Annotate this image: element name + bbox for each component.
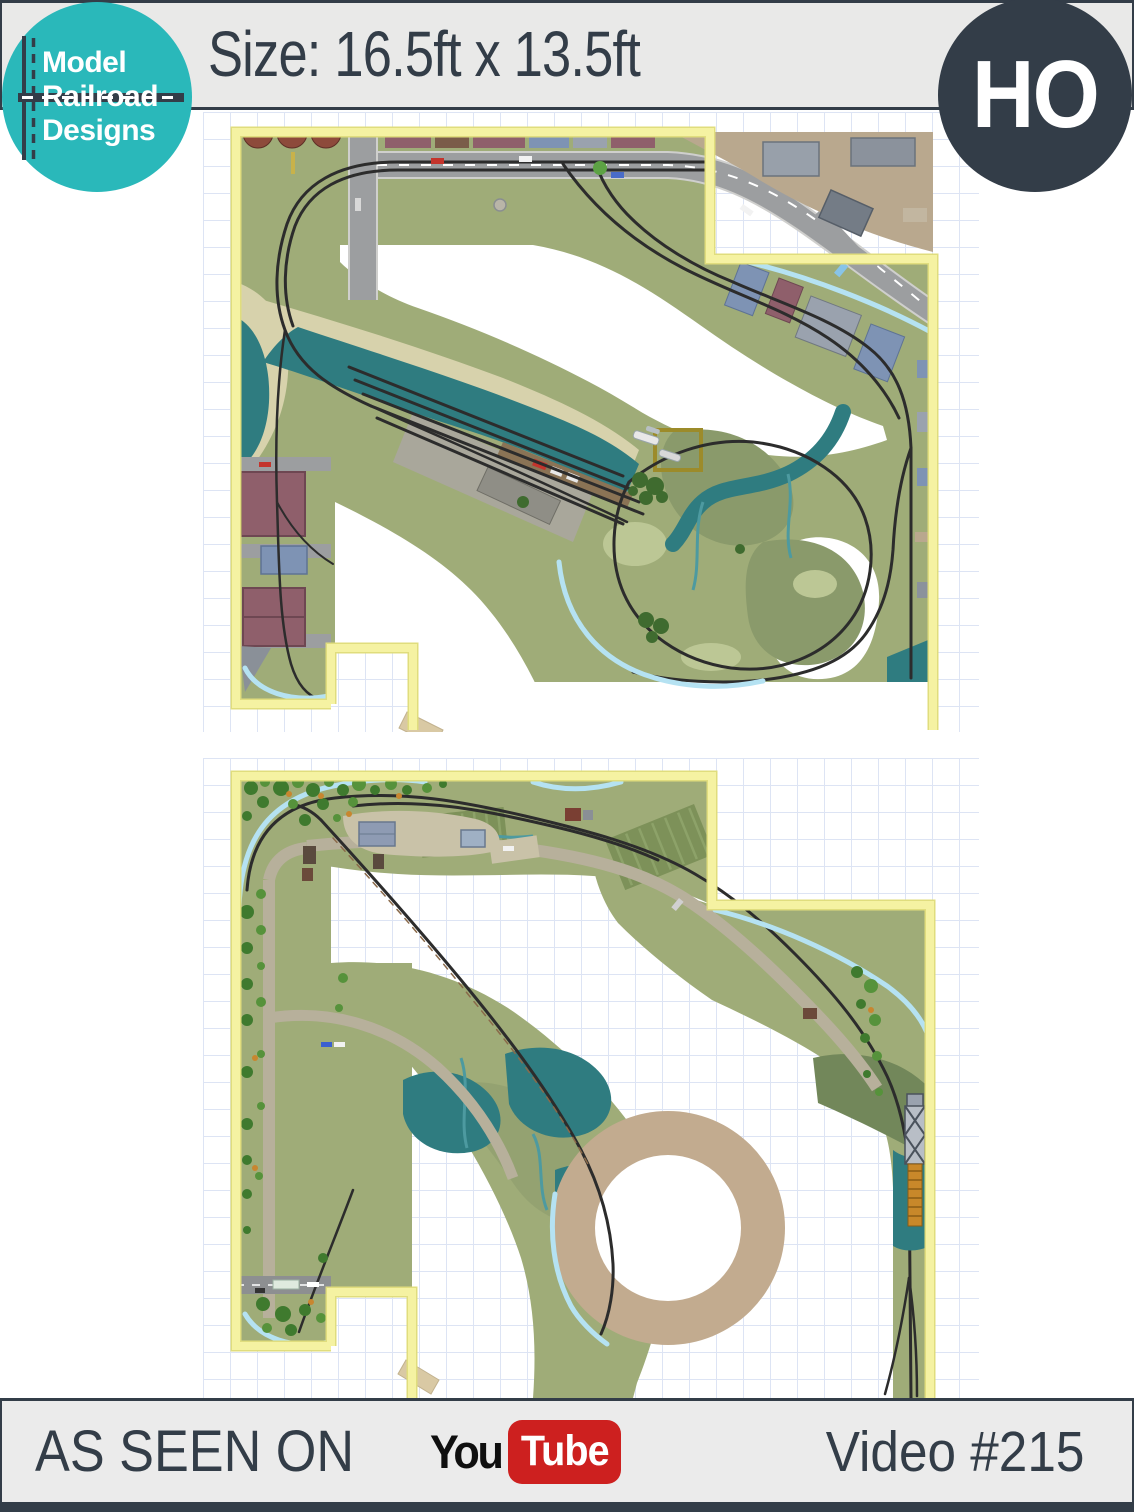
video-number: Video #215 <box>825 1419 1084 1485</box>
size-title: Size: 16.5ft x 13.5ft <box>208 17 640 91</box>
track-plan-bottom-tile <box>203 758 979 1398</box>
helix-ring <box>551 1111 785 1345</box>
youtube-tube-text: Tube <box>521 1427 609 1476</box>
bottom-edge-strip <box>0 1502 1134 1512</box>
track-plan-top-illustration <box>203 112 979 732</box>
track-plan-top-tile <box>203 112 979 732</box>
scale-badge: HO <box>938 0 1132 192</box>
as-seen-on-text: AS SEEN ON <box>35 1418 354 1485</box>
brand-logo: Model Railroad Designs <box>2 2 192 192</box>
page: Size: 16.5ft x 13.5ft Model Railroad Des… <box>0 0 1134 1512</box>
scale-badge-label: HO <box>972 40 1098 150</box>
youtube-logo: You Tube <box>430 1420 622 1484</box>
youtube-you-text: You <box>430 1424 502 1479</box>
exit-ramp <box>398 1360 439 1394</box>
logo-text: Model Railroad Designs <box>42 46 158 148</box>
logo-line-1: Model <box>42 46 158 80</box>
track-plan-bottom-illustration <box>203 758 979 1398</box>
logo-line-3: Designs <box>42 114 158 148</box>
logo-line-2: Railroad <box>42 80 158 114</box>
youtube-tube-badge: Tube <box>508 1420 621 1484</box>
footer-bar: AS SEEN ON You Tube Video #215 <box>0 1398 1134 1502</box>
